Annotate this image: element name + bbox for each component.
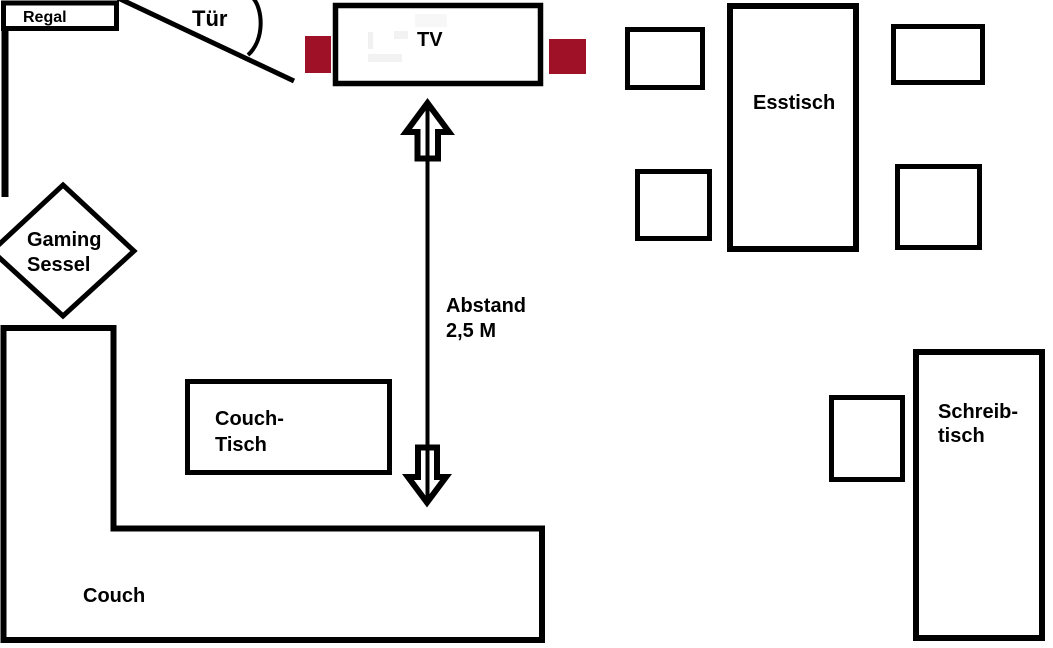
svg-text:Esstisch: Esstisch bbox=[753, 92, 835, 114]
svg-text:tisch: tisch bbox=[938, 425, 985, 447]
svg-text:Couch-: Couch- bbox=[215, 408, 284, 430]
svg-text:Tür: Tür bbox=[192, 6, 228, 31]
svg-text:Gaming: Gaming bbox=[27, 229, 101, 251]
svg-text:TV: TV bbox=[417, 29, 443, 51]
svg-text:2,5 M: 2,5 M bbox=[446, 320, 496, 342]
svg-text:Abstand: Abstand bbox=[446, 295, 526, 317]
svg-text:Schreib-: Schreib- bbox=[938, 401, 1018, 423]
svg-text:Tisch: Tisch bbox=[215, 434, 267, 456]
svg-text:Couch: Couch bbox=[83, 585, 145, 607]
svg-text:Sessel: Sessel bbox=[27, 254, 90, 276]
svg-text:Regal: Regal bbox=[23, 9, 67, 26]
